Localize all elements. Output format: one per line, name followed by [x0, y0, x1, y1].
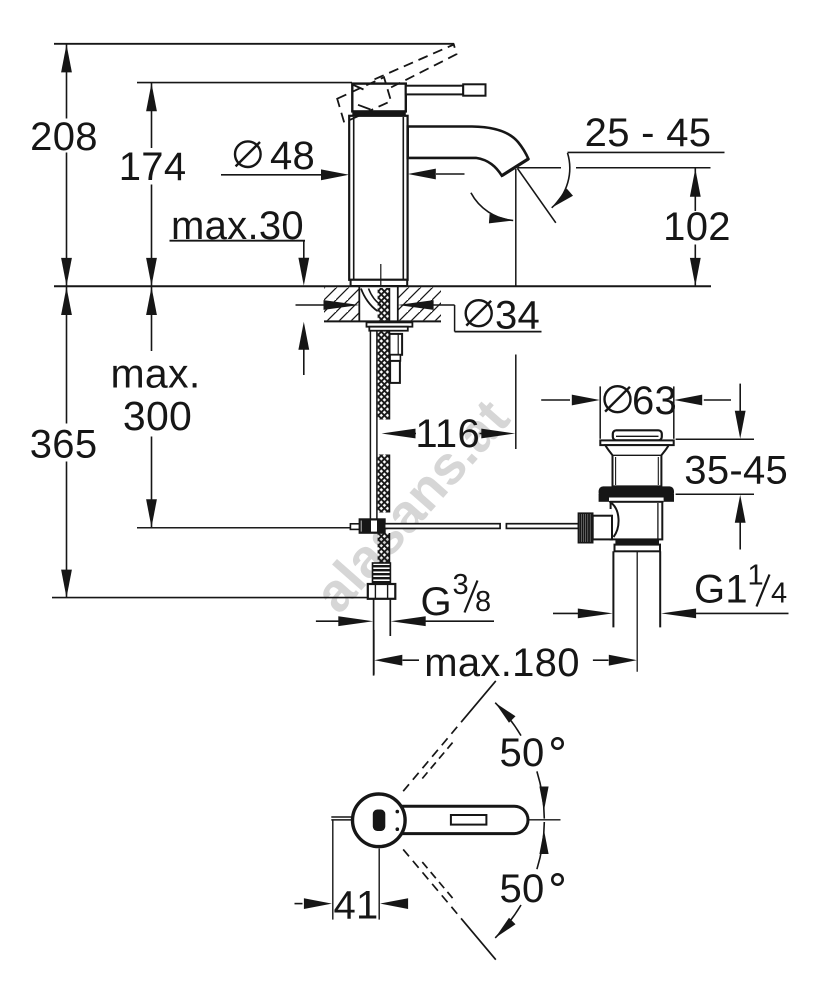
svg-text:63: 63	[632, 379, 677, 423]
svg-text:8: 8	[475, 586, 491, 618]
svg-text:48: 48	[270, 134, 315, 178]
svg-text:max.: max.	[110, 350, 200, 396]
svg-text:50: 50	[499, 867, 544, 911]
svg-text:116: 116	[415, 412, 480, 456]
svg-text:4: 4	[771, 578, 787, 610]
svg-text:208: 208	[30, 115, 98, 159]
svg-text:G1: G1	[694, 568, 748, 612]
svg-text:3: 3	[453, 569, 469, 601]
svg-text:174: 174	[119, 145, 187, 189]
svg-text:300: 300	[123, 393, 192, 439]
svg-text:35-45: 35-45	[684, 449, 788, 493]
svg-text:41: 41	[333, 884, 378, 928]
svg-text:G: G	[421, 580, 452, 624]
svg-text:1: 1	[748, 560, 764, 592]
svg-text:102: 102	[663, 205, 731, 249]
svg-text:max.180: max.180	[424, 641, 580, 685]
svg-text:50: 50	[499, 731, 544, 775]
svg-text:34: 34	[495, 293, 540, 337]
svg-text:25 - 45: 25 - 45	[585, 111, 712, 155]
svg-text:365: 365	[30, 422, 98, 466]
